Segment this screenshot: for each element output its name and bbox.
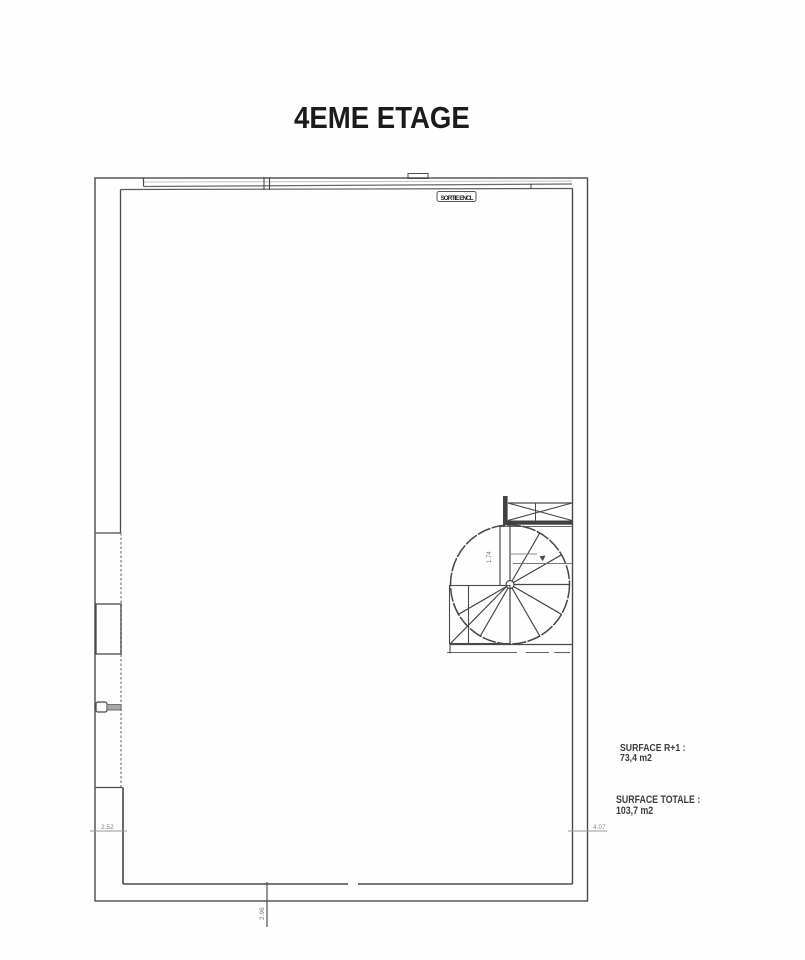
svg-text:2.96: 2.96: [259, 907, 266, 920]
svg-text:2.52: 2.52: [101, 824, 114, 831]
svg-text:4.07: 4.07: [593, 824, 606, 831]
svg-text:SORTIE ENCL: SORTIE ENCL: [441, 195, 474, 202]
svg-text:1.74: 1.74: [487, 551, 493, 563]
